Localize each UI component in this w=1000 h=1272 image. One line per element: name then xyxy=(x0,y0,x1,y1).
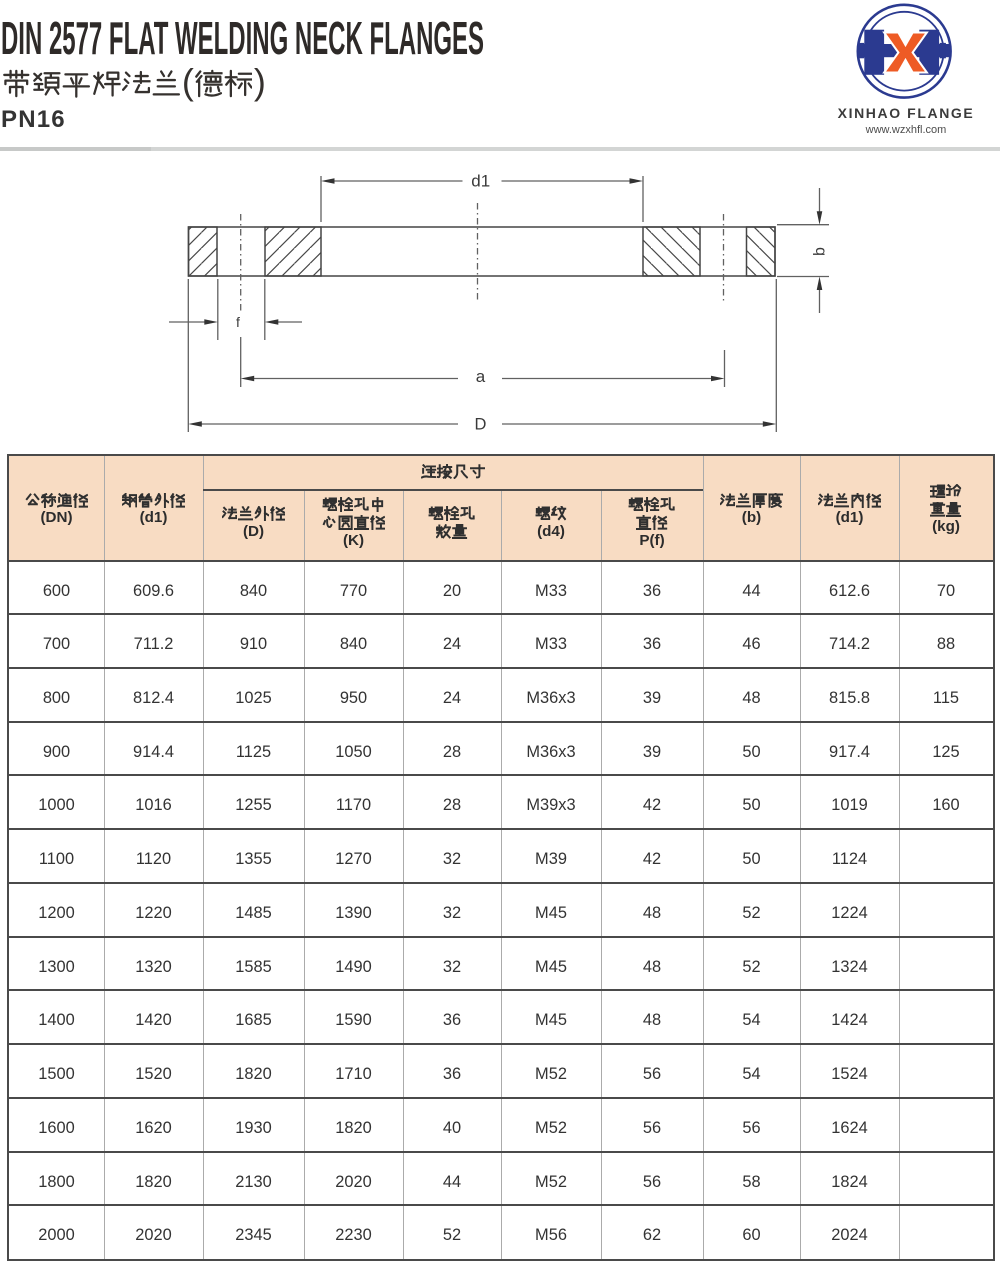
svg-text:d1: d1 xyxy=(471,171,490,190)
svg-text:f: f xyxy=(236,314,240,330)
svg-text:D: D xyxy=(475,415,487,433)
svg-text:b: b xyxy=(812,247,829,256)
svg-text:a: a xyxy=(476,367,486,386)
